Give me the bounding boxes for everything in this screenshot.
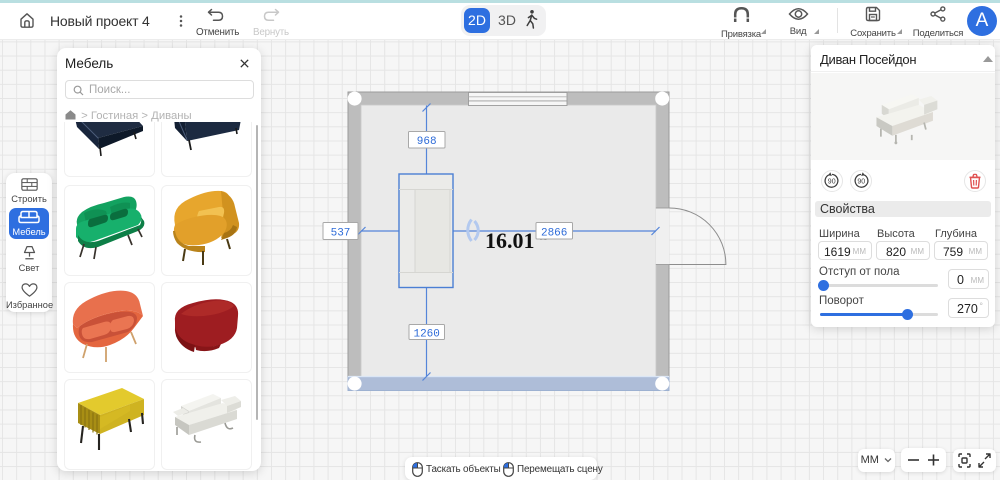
svg-text:968: 968 [417, 136, 437, 148]
svg-text:1260: 1260 [413, 329, 439, 341]
svg-text:90: 90 [857, 179, 865, 186]
svg-text:90: 90 [827, 179, 835, 186]
svg-text:537: 537 [331, 228, 351, 240]
svg-text:16.01: 16.01 [485, 228, 535, 253]
svg-text:2866: 2866 [541, 228, 567, 240]
